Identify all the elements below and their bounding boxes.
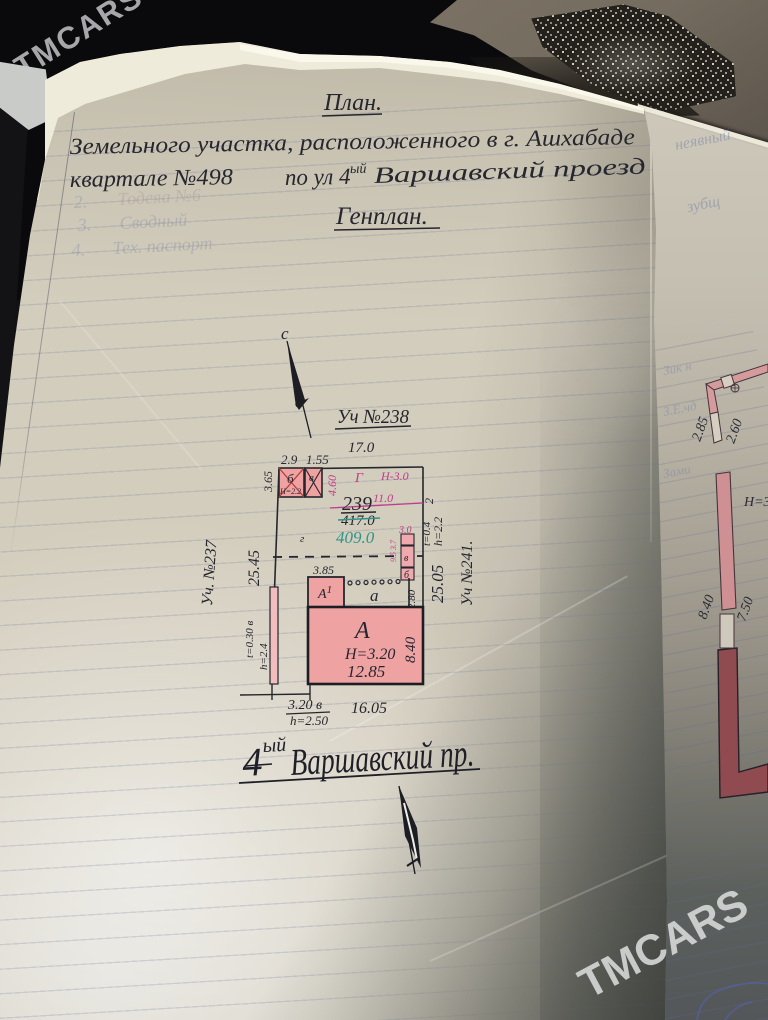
- svg-text:зубщ: зубщ: [685, 193, 722, 216]
- svg-text:3.65: 3.65: [261, 471, 275, 493]
- svg-text:б: б: [287, 471, 294, 486]
- svg-text:2: 2: [422, 498, 436, 504]
- svg-text:Тех. паспорт: Тех. паспорт: [112, 233, 213, 258]
- svg-text:409.0: 409.0: [336, 528, 375, 547]
- svg-text:12.85: 12.85: [347, 662, 385, 681]
- svg-text:h=2.2: h=2.2: [431, 517, 445, 546]
- svg-text:с: с: [281, 324, 289, 343]
- svg-text:4.: 4.: [71, 239, 86, 260]
- svg-text:4.60: 4.60: [325, 475, 339, 496]
- svg-text:ый: ый: [262, 734, 287, 757]
- svg-text:Н-3.0: Н-3.0: [380, 469, 409, 483]
- svg-text:2.: 2.: [73, 191, 88, 212]
- svg-text:16.05: 16.05: [351, 700, 387, 717]
- svg-text:в: в: [404, 553, 409, 564]
- svg-text:г: г: [300, 533, 305, 545]
- svg-text:Н=3.: Н=3.: [743, 495, 768, 510]
- svg-text:3.0: 3.0: [398, 525, 412, 536]
- svg-text:Тодеяа №6: Тодеяа №6: [117, 185, 201, 209]
- svg-text:t=0.30 в: t=0.30 в: [244, 621, 256, 658]
- svg-text:Зик н: Зик н: [662, 358, 693, 378]
- svg-text:3.20 в: 3.20 в: [287, 698, 322, 713]
- svg-text:Уч №241.: Уч №241.: [459, 541, 476, 606]
- svg-text:неявный: неявный: [674, 127, 732, 154]
- svg-text:в: в: [309, 472, 314, 484]
- svg-text:Г: Г: [354, 471, 364, 486]
- svg-text:2.9: 2.9: [281, 452, 298, 467]
- svg-text:2.60: 2.60: [724, 417, 746, 445]
- svg-text:3.: 3.: [76, 214, 92, 235]
- svg-text:а: а: [370, 586, 379, 605]
- svg-text:8.40: 8.40: [403, 636, 419, 663]
- svg-text:Н=2.2: Н=2.2: [279, 487, 301, 496]
- svg-text:h=2.4: h=2.4: [258, 643, 270, 670]
- svg-text:9.5 3.7: 9.5 3.7: [389, 539, 398, 562]
- svg-text:Земельного участка, расположен: Земельного участка, расположенного в г. …: [70, 124, 635, 159]
- svg-text:3.85: 3.85: [312, 563, 334, 577]
- svg-text:Генплан.: Генплан.: [335, 203, 428, 230]
- svg-text:Сводный: Сводный: [119, 209, 188, 233]
- svg-text:Уч. №237: Уч. №237: [199, 539, 221, 607]
- svg-text:З.Е.чд: З.Е.чд: [662, 398, 698, 419]
- svg-text:1.55: 1.55: [306, 452, 329, 467]
- svg-text:ый: ый: [350, 162, 367, 177]
- svg-text:Варшавский проезд: Варшавский проезд: [373, 154, 646, 188]
- svg-text:по ул 4: по ул 4: [285, 164, 351, 190]
- svg-text:17.0: 17.0: [348, 440, 375, 456]
- svg-text:Зами: Зами: [662, 461, 693, 481]
- svg-text:Уч №238: Уч №238: [337, 406, 409, 428]
- svg-text:Варшавский пр.: Варшавский пр.: [289, 732, 475, 784]
- svg-text:4: 4: [241, 739, 263, 785]
- svg-text:25.45: 25.45: [246, 550, 263, 586]
- svg-text:Н=3.20: Н=3.20: [344, 646, 395, 663]
- svg-text:7.50: 7.50: [735, 595, 757, 623]
- svg-text:2.85: 2.85: [690, 415, 712, 443]
- svg-text:11.0: 11.0: [373, 491, 393, 505]
- svg-text:План.: План.: [323, 90, 382, 116]
- svg-text:h=2.50: h=2.50: [290, 713, 329, 728]
- svg-text:417.0: 417.0: [341, 513, 375, 529]
- svg-text:25.05: 25.05: [428, 565, 447, 603]
- svg-text:А: А: [353, 618, 370, 644]
- svg-text:8.40: 8.40: [696, 593, 718, 621]
